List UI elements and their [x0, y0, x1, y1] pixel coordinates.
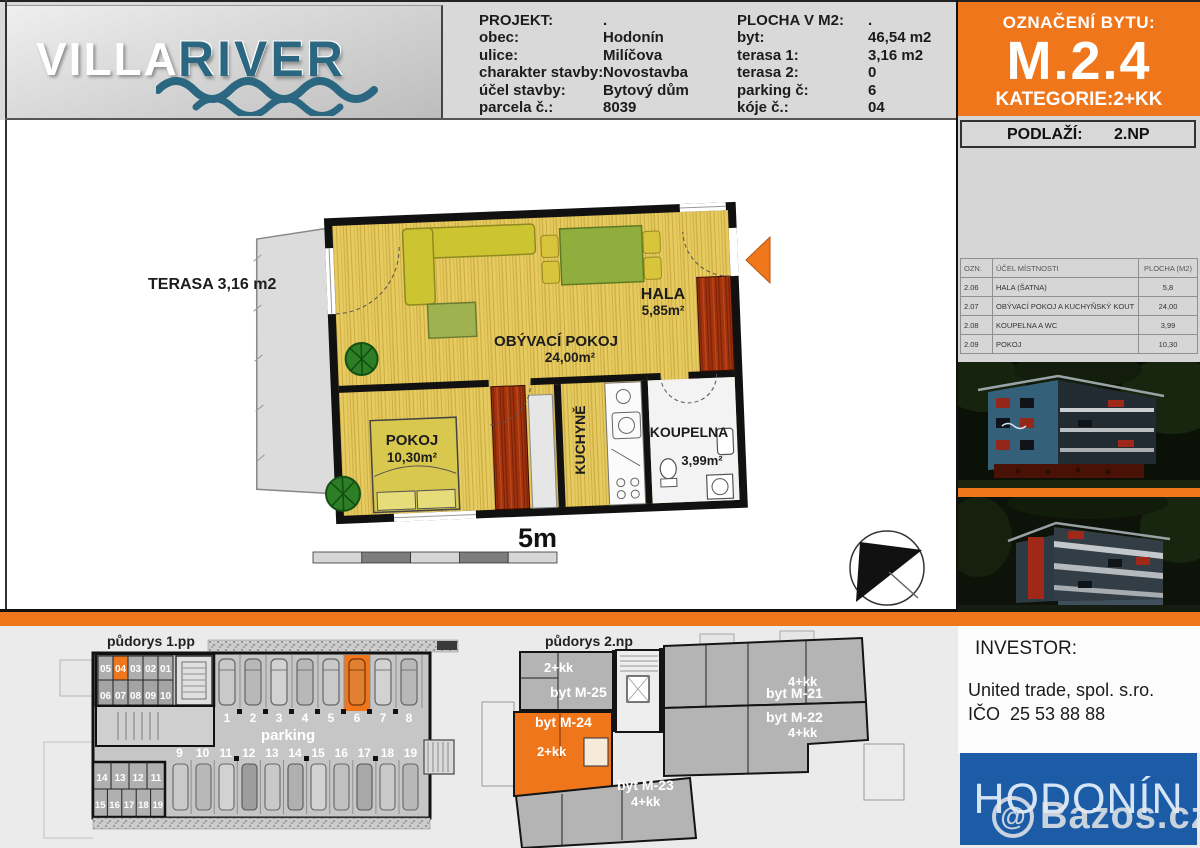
podlazi-value: 2.NP [1114, 126, 1150, 144]
storage-box-number: 13 [114, 773, 126, 784]
plant-icon [325, 476, 360, 511]
unit-type-label: 2+kk [537, 744, 567, 759]
stairs [176, 656, 212, 705]
storage-block-b: 14 13 12 11 15 16 17 18 19 [93, 762, 165, 817]
kitchen-counter [605, 382, 646, 505]
col-header-plocha: PLOCHA (M2) [1139, 259, 1198, 278]
projekt-title-label: PROJEKT: [479, 12, 553, 29]
car-icon [311, 764, 326, 810]
storage-box-number: 09 [145, 691, 157, 702]
parking-space-number: 9 [176, 746, 183, 760]
parking-space-number: 19 [404, 746, 418, 760]
orange-divider [958, 488, 1200, 497]
plocha-row-value: 04 [868, 99, 885, 116]
unit-type-label: 2+kk [544, 660, 574, 675]
plocha-row: byt: 46,54 m2 [737, 29, 957, 46]
unit-type-label: 4+kk [788, 725, 818, 740]
car-icon [334, 764, 349, 810]
car-icon [403, 764, 418, 810]
unit-name-label: byt M-22 [766, 709, 823, 725]
table-row: 2.08 KOUPELNA A WC 3,99 [961, 316, 1198, 335]
storage-block-a: 05 04 03 02 01 06 07 08 09 10 [96, 654, 214, 746]
wave-icon [156, 72, 388, 116]
plocha-row-value: 3,16 m2 [868, 47, 923, 64]
entrance-arrow-icon [746, 237, 770, 283]
apartment-number: M.2.4 [958, 33, 1200, 89]
storage-box-number: 12 [132, 773, 144, 784]
chair [541, 235, 559, 258]
car-icon [219, 764, 234, 810]
projekt-row-value: Novostavba [603, 64, 688, 81]
cell-plocha: 24,00 [1139, 297, 1198, 316]
storage-box-number: 06 [100, 691, 112, 702]
projekt-row: charakter stavby: Novostavba [479, 64, 754, 81]
main-floorplan: TERASA 3,16 m2 HALA 5,85m² OBÝVACÍ POKOJ… [6, 120, 958, 612]
storage-box-number: 14 [96, 773, 108, 784]
cell-plocha: 5,8 [1139, 278, 1198, 297]
parking-space-number: 15 [311, 746, 325, 760]
coffee-table [427, 302, 476, 338]
col-header-ozn: OZN. [961, 259, 993, 278]
obyvaci-pokoj-area: 24,00m² [545, 350, 596, 365]
parking-space-number: 7 [380, 711, 387, 725]
car-icon [401, 659, 417, 705]
kuchyne-label: KUCHYNĚ [571, 405, 588, 474]
parking-space-number: 13 [265, 746, 279, 760]
car-icon [357, 764, 372, 810]
projekt-row: parcela č.: 8039 [479, 99, 754, 116]
room-schedule-table: OZN. ÚČEL MÍSTNOSTI PLOCHA (M2) 2.06 HAL… [960, 258, 1198, 354]
hala-label: HALA [641, 286, 686, 303]
wardrobe-red-bedroom [491, 385, 530, 509]
header-divider-line [5, 118, 956, 120]
investor-box: INVESTOR: United trade, spol. s.ro. IČO … [958, 626, 1200, 753]
parking-space-number: 14 [288, 746, 302, 760]
unit-name-label: byt M-23 [617, 777, 674, 793]
car-icon [375, 659, 391, 705]
flyer-page: VILLA RIVER PROJEKT: . obec: Hodonín uli… [0, 0, 1200, 848]
parking-space-number: 8 [406, 711, 413, 725]
car-icon [219, 659, 235, 705]
parking-space-number: 3 [276, 711, 283, 725]
plocha-row-label: kóje č.: [737, 99, 789, 116]
cell-ucel: POKOJ [993, 335, 1139, 354]
unit-m21 [664, 638, 866, 708]
parking-label: parking [261, 727, 315, 744]
plocha-row: kóje č.: 04 [737, 99, 957, 116]
parking-space-number: 6 [354, 711, 361, 725]
storage-box-number: 02 [145, 664, 157, 675]
storage-box-number: 11 [151, 773, 162, 784]
projekt-row-label: parcela č.: [479, 99, 553, 116]
main-right-divider-line [956, 0, 958, 612]
parking-space-number: 10 [196, 746, 210, 760]
projekt-row: obec: Hodonín [479, 29, 754, 46]
overview-plans: půdorys 1.pp [40, 628, 970, 848]
podlazi-label: PODLAŽÍ: [1007, 126, 1083, 144]
investor-company: United trade, spol. s.ro. [968, 680, 1154, 701]
dining-table [560, 226, 644, 285]
city-logo-box: HODONÍN [960, 753, 1197, 845]
projekt-row-value: Milíčova [603, 47, 662, 64]
villa-river-logo: VILLA RIVER [5, 5, 443, 119]
car-icon [245, 659, 261, 705]
hala-area: 5,85m² [642, 303, 685, 318]
plocha-row: terasa 1: 3,16 m2 [737, 47, 957, 64]
parking-space-number: 17 [358, 746, 372, 760]
cell-ozn: 2.09 [961, 335, 993, 354]
plan-1pp: půdorys 1.pp [44, 633, 458, 838]
toilet-icon [660, 458, 677, 479]
storage-box-number: 04 [115, 664, 127, 675]
building-render-photo-2 [958, 497, 1200, 612]
plan1-title: půdorys 1.pp [107, 633, 195, 649]
car-icon [323, 659, 339, 705]
car-icon [196, 764, 211, 810]
cell-ozn: 2.08 [961, 316, 993, 335]
header-band: VILLA RIVER PROJEKT: . obec: Hodonín uli… [0, 0, 1200, 120]
chair [644, 257, 662, 280]
cell-ozn: 2.06 [961, 278, 993, 297]
scale-bar: 5m [313, 523, 557, 563]
storage-box-number: 05 [100, 664, 112, 675]
cell-ucel: HALA (ŠATNA) [993, 278, 1139, 297]
table-header-row: OZN. ÚČEL MÍSTNOSTI PLOCHA (M2) [961, 259, 1198, 278]
car-icon [265, 764, 280, 810]
storage-box-number: 19 [153, 800, 164, 811]
car-icon [380, 764, 395, 810]
plocha-row-value: 0 [868, 64, 876, 81]
car-icon [349, 659, 365, 705]
projekt-row: ulice: Milíčova [479, 47, 754, 64]
storage-box-number: 10 [160, 691, 172, 702]
projekt-title-row: PROJEKT: . [479, 12, 754, 29]
plocha-row-value: 46,54 m2 [868, 29, 931, 46]
right-sidebar: PODLAŽÍ: 2.NP OZN. ÚČEL MÍSTNOSTI PLOCHA… [958, 116, 1200, 627]
storage-box-number: 08 [130, 691, 142, 702]
cell-ozn: 2.07 [961, 297, 993, 316]
projekt-row-label: charakter stavby: [479, 64, 603, 81]
parking-space-number: 2 [250, 711, 257, 725]
table-row: 2.09 POKOJ 10,30 [961, 335, 1198, 354]
washer-icon [707, 474, 734, 499]
koupelna-label: KOUPELNA [650, 424, 729, 440]
projekt-row-label: ulice: [479, 47, 518, 64]
parking-space-number: 16 [335, 746, 349, 760]
investor-ico: IČO 25 53 88 88 [968, 704, 1105, 725]
unit-name-label: byt M-21 [766, 685, 823, 701]
plocha-row-value: 6 [868, 82, 876, 99]
cell-ucel: KOUPELNA A WC [993, 316, 1139, 335]
plocha-row: parking č: 6 [737, 82, 957, 99]
apartment-category: KATEGORIE:2+KK [958, 89, 1200, 111]
table-row: 2.06 HALA (ŠATNA) 5,8 [961, 278, 1198, 297]
cell-plocha: 3,99 [1139, 316, 1198, 335]
car-icon [297, 659, 313, 705]
left-border-line [5, 0, 7, 612]
scale-label: 5m [518, 523, 557, 553]
plocha-title-label: PLOCHA V M2: [737, 12, 844, 29]
north-compass-icon [850, 531, 924, 605]
unit-name-label: byt M-25 [550, 684, 607, 700]
plocha-info: PLOCHA V M2: . byt: 46,54 m2 terasa 1: 3… [737, 12, 957, 116]
parking-space-number: 18 [381, 746, 395, 760]
city-name: HODONÍN [973, 775, 1183, 824]
table-row: 2.07 OBÝVACÍ POKOJ A KUCHYŇSKÝ KOUT 24,0… [961, 297, 1198, 316]
plocha-title-row: PLOCHA V M2: . [737, 12, 957, 29]
pokoj-area: 10,30m² [387, 450, 438, 465]
projekt-row-label: obec: [479, 29, 519, 46]
floor-bar: PODLAŽÍ: 2.NP [960, 120, 1196, 148]
plocha-row-label: terasa 1: [737, 47, 799, 64]
storage-box-number: 03 [130, 664, 142, 675]
storage-box-number: 17 [124, 800, 135, 811]
wardrobe-red [697, 276, 735, 371]
parking-space-number: 11 [219, 746, 232, 760]
plan-2np: půdorys 2.np [482, 631, 904, 848]
car-icon [242, 764, 257, 810]
col-header-ucel: ÚČEL MÍSTNOSTI [993, 259, 1139, 278]
parking-space-number: 12 [242, 746, 256, 760]
projekt-info: PROJEKT: . obec: Hodonín ulice: Milíčova… [479, 12, 754, 116]
chair [643, 231, 661, 254]
projekt-row: účel stavby: Bytový dům [479, 82, 754, 99]
cell-ucel: OBÝVACÍ POKOJ A KUCHYŇSKÝ KOUT [993, 297, 1139, 316]
storage-box-number: 01 [160, 664, 172, 675]
plan2-title: půdorys 2.np [545, 633, 633, 649]
parking-space-number: 1 [224, 711, 231, 725]
parking-space-number: 5 [328, 711, 335, 725]
projekt-row-value: Bytový dům [603, 82, 689, 99]
apartment-id-box: OZNAČENÍ BYTU: M.2.4 KATEGORIE:2+KK [958, 2, 1200, 118]
plocha-row-label: byt: [737, 29, 765, 46]
cabinet-white [528, 394, 557, 508]
parking-space-number: 4 [302, 711, 309, 725]
projekt-row-label: účel stavby: [479, 82, 566, 99]
car-icon [271, 659, 287, 705]
cell-plocha: 10,30 [1139, 335, 1198, 354]
chair [542, 261, 560, 284]
projekt-row-value: 8039 [603, 99, 636, 116]
apartment-plan-group [246, 202, 748, 527]
plocha-row: terasa 2: 0 [737, 64, 957, 81]
unit-type-label: 4+kk [631, 794, 661, 809]
oznaceni-label: OZNAČENÍ BYTU: [958, 13, 1200, 33]
storage-box-number: 15 [95, 800, 106, 811]
investor-title: INVESTOR: [975, 638, 1077, 660]
projekt-row-value: Hodonín [603, 29, 664, 46]
projekt-title-value: . [603, 12, 607, 29]
plocha-row-label: terasa 2: [737, 64, 799, 81]
storage-box-number: 07 [115, 691, 127, 702]
orange-separator-bar [0, 612, 1200, 626]
koupelna-area: 3,99m² [681, 453, 723, 468]
obyvaci-pokoj-label: OBÝVACÍ POKOJ [494, 332, 618, 350]
terrace-area [246, 228, 338, 497]
unit-name-label: byt M-24 [535, 714, 592, 730]
plocha-row-label: parking č: [737, 82, 809, 99]
building-render-photo-1 [958, 362, 1200, 488]
plant-icon [345, 342, 378, 375]
storage-box-number: 16 [109, 800, 120, 811]
plocha-title-value: . [868, 12, 872, 29]
pokoj-label: POKOJ [386, 432, 439, 449]
car-icon [173, 764, 188, 810]
storage-box-number: 18 [138, 800, 149, 811]
ramp-stairs [424, 740, 454, 774]
car-icon [288, 764, 303, 810]
terasa-label: TERASA 3,16 m2 [148, 276, 276, 293]
